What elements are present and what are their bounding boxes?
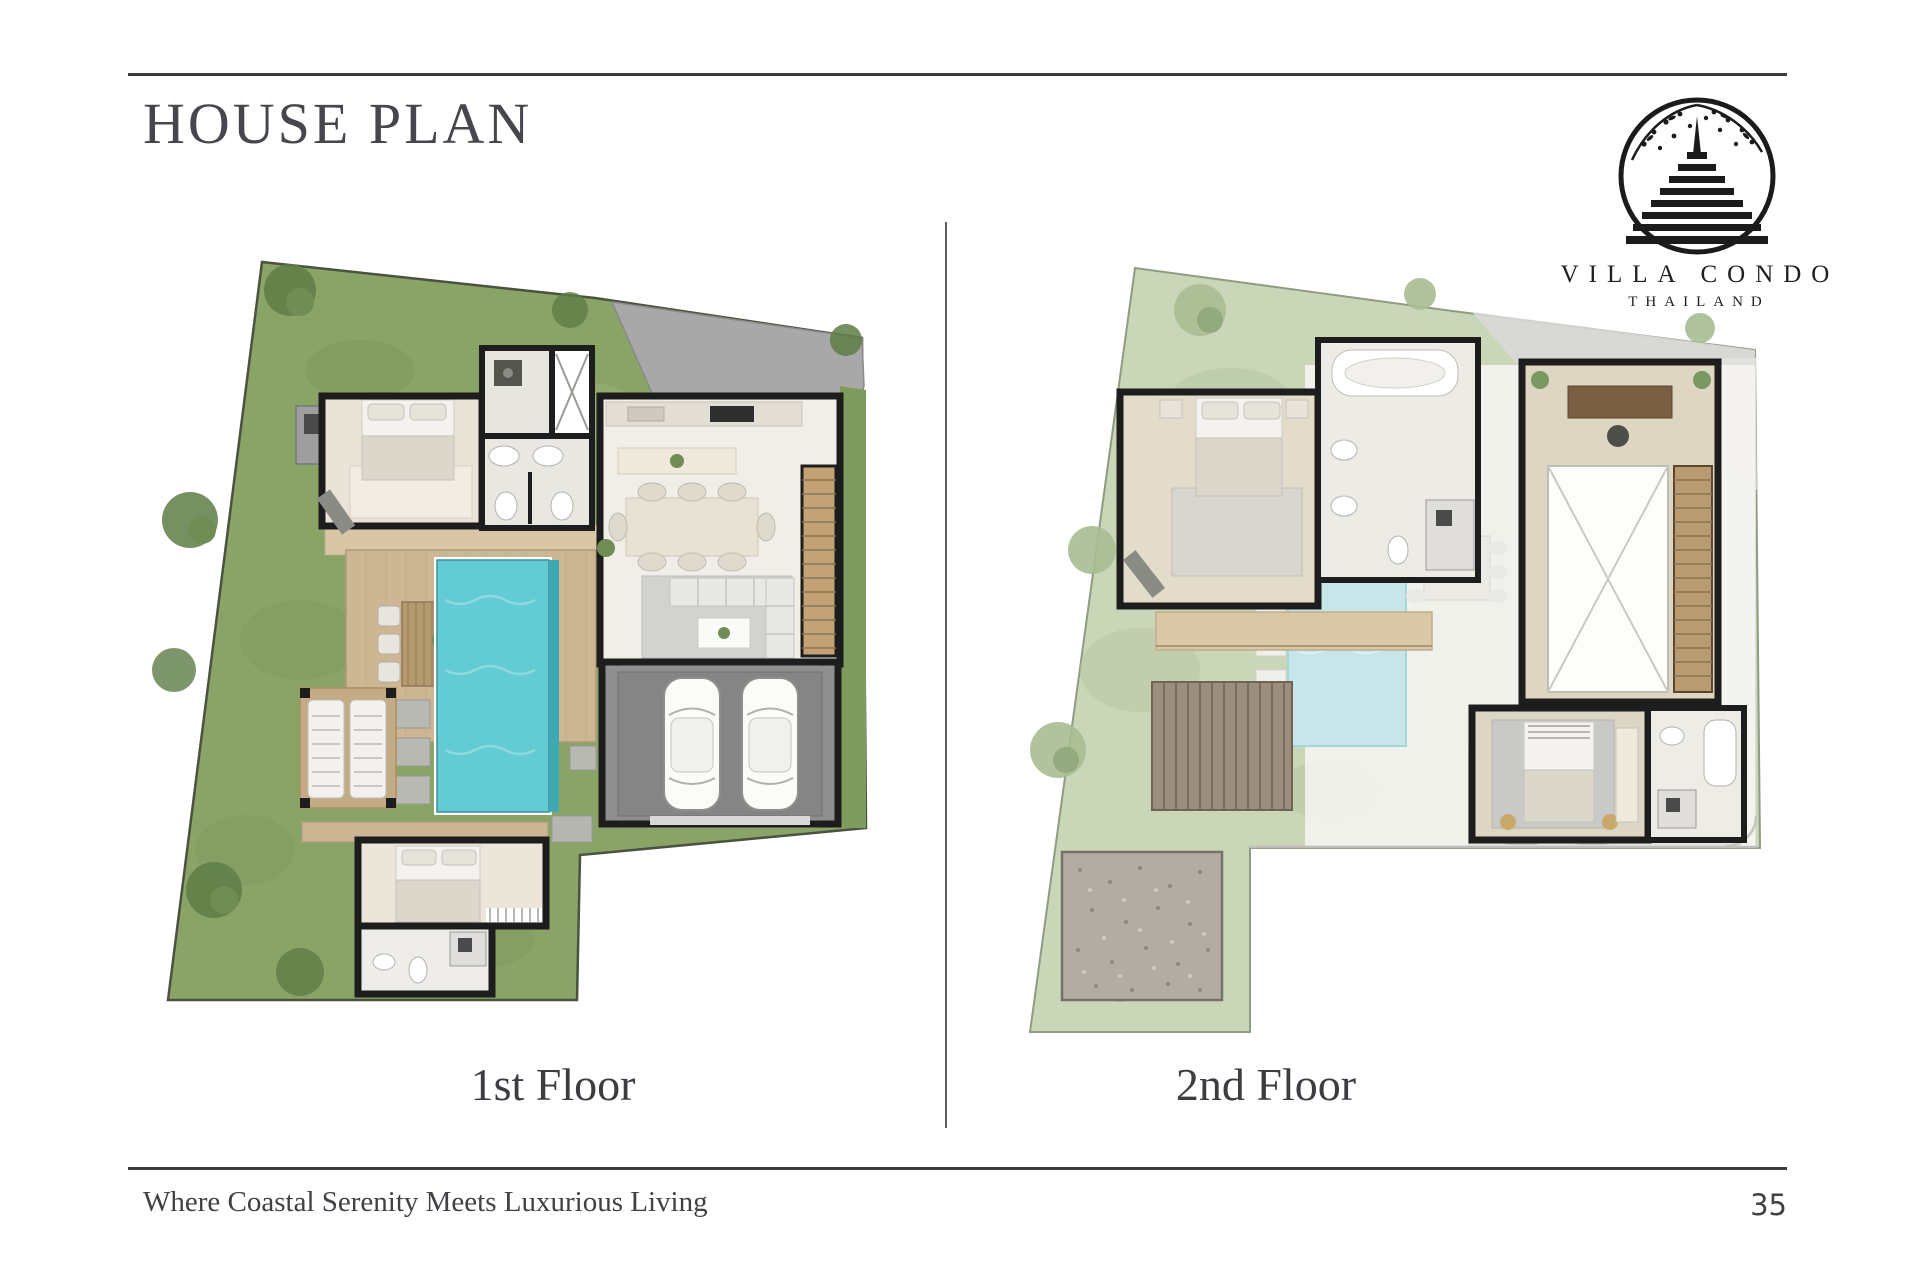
- staircase-upper: [1674, 466, 1712, 692]
- bathroom-2: [1318, 340, 1478, 580]
- bedroom-1: [317, 396, 482, 535]
- car-2: [742, 678, 798, 810]
- swimming-pool: [434, 557, 559, 815]
- staircase: [802, 466, 836, 656]
- sun-loungers: [300, 688, 396, 808]
- bedroom-3: [1472, 708, 1648, 840]
- bedroom-2: [1120, 392, 1318, 606]
- plan-divider-line: [945, 222, 947, 1128]
- first-floor-label: 1st Floor: [343, 1058, 763, 1111]
- villa-condo-logo-icon: [1602, 88, 1792, 268]
- pergola-roof: [1152, 682, 1292, 810]
- first-floor-plan-image: [150, 210, 880, 1020]
- garage: [602, 662, 838, 825]
- wc-closet: [552, 348, 592, 436]
- second-floor-plan-image: [1000, 250, 1800, 1050]
- bathroom-3: [1648, 708, 1744, 840]
- footer-rule: [128, 1167, 1787, 1170]
- gravel-court: [1062, 852, 1222, 1000]
- second-floor-label: 2nd Floor: [1056, 1058, 1476, 1111]
- first-floor-side-lawn: [840, 386, 866, 828]
- bathroom-1: [482, 436, 592, 528]
- page-number: 35: [1750, 1188, 1787, 1222]
- balcony: [1156, 612, 1432, 650]
- house-plan-page: HOUSE PLAN VILLA CONDO TH: [0, 0, 1920, 1280]
- footer-tagline: Where Coastal Serenity Meets Luxurious L…: [143, 1186, 708, 1219]
- header-rule: [128, 73, 1787, 76]
- shower-room: [482, 348, 552, 436]
- void-over-living: [1548, 466, 1668, 692]
- family-room: [1522, 362, 1718, 702]
- page-title: HOUSE PLAN: [143, 90, 532, 157]
- car-1: [664, 678, 720, 810]
